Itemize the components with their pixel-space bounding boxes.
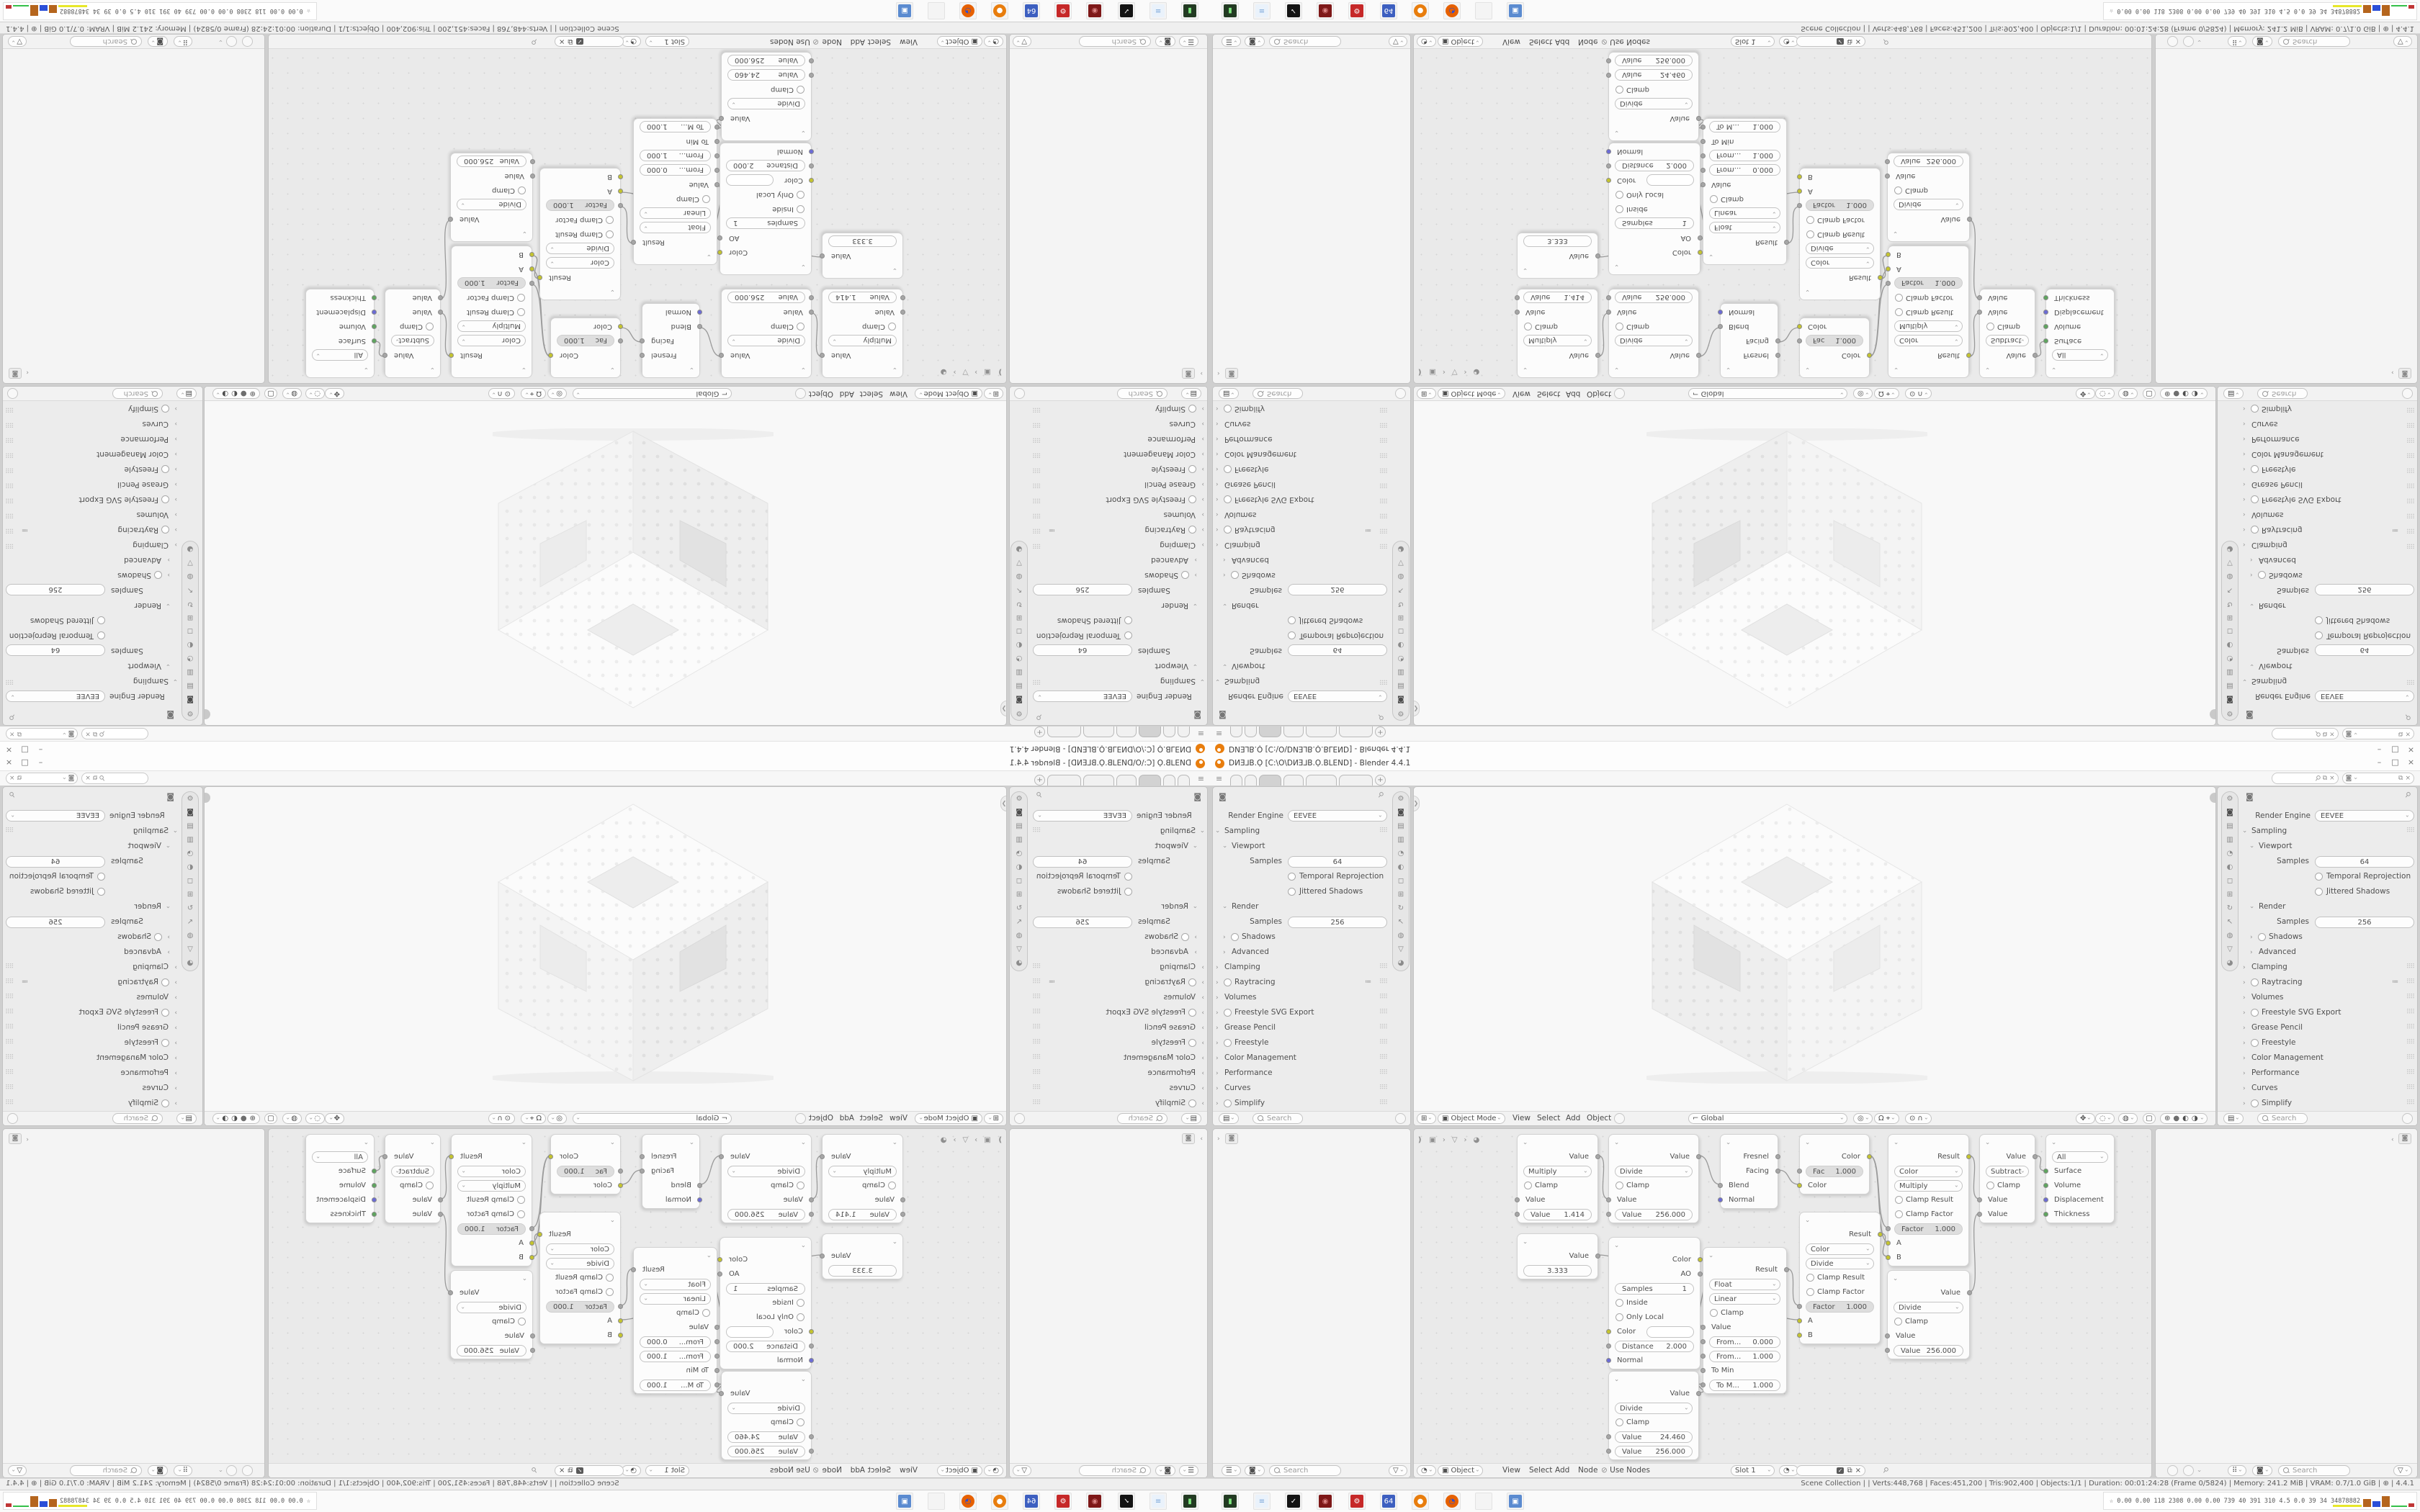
copy-icon[interactable]: ⧉ — [93, 730, 97, 737]
properties-row-viewport[interactable]: ›Viewport — [3, 657, 180, 672]
menu-node[interactable]: Node — [1578, 1466, 1597, 1475]
search-input[interactable]: Search — [1252, 1113, 1303, 1124]
node-checkbox[interactable] — [606, 1274, 614, 1282]
collapse-icon[interactable]: › — [429, 367, 436, 370]
view-layer-icon[interactable]: ▥ — [1397, 837, 1404, 844]
color-swatch-field[interactable] — [726, 174, 774, 186]
node-checkbox[interactable] — [1806, 216, 1814, 224]
overlays-dropdown[interactable]: ◌› — [2095, 388, 2115, 399]
properties-row-performance[interactable]: ›Performance⠿⠿ — [1213, 431, 1390, 446]
collapse-icon[interactable]: › — [1803, 1220, 1811, 1223]
workspace-tab[interactable] — [1230, 775, 1242, 786]
expand-icon[interactable]: › — [26, 369, 29, 377]
subsection-checkbox[interactable] — [1181, 571, 1189, 579]
node-select[interactable]: Divide› — [457, 199, 526, 210]
node-checkbox[interactable] — [1894, 186, 1902, 194]
collapse-icon[interactable]: ❫ — [1417, 368, 1422, 376]
collapse-icon[interactable]: › — [1891, 231, 1899, 234]
properties-row-grease-pencil[interactable]: ›Grease Pencil⠿⠿ — [1213, 476, 1390, 491]
math-subtract-node[interactable]: ›ValueSubtract›ClampValueValue — [1979, 289, 2035, 378]
snapping-dropdown[interactable]: Ω⌖› — [521, 1113, 547, 1124]
wireframe-shading-icon[interactable]: ⊕ — [250, 1115, 256, 1122]
panel-corner-icon[interactable]: ◙ — [2398, 1133, 2411, 1144]
texture-icon[interactable]: ◕ — [2227, 545, 2233, 552]
math-multiply-node[interactable]: ›ValueMultiply›ClampValueValue1.414 — [822, 1134, 903, 1223]
search-input[interactable]: Search — [1117, 388, 1168, 399]
filter-type-dropdown[interactable]: ◙› — [2252, 36, 2272, 47]
minimize-button[interactable]: – — [36, 745, 45, 755]
scene-icon[interactable]: ◔ — [1016, 850, 1023, 858]
properties-row-viewport[interactable]: ›Viewport — [2240, 840, 2417, 855]
properties-row-viewport[interactable]: ›Viewport — [3, 840, 180, 855]
node-checkbox[interactable] — [888, 323, 896, 330]
properties-row-samples[interactable]: Samples256 — [1030, 582, 1207, 597]
subsection-checkbox[interactable] — [1231, 933, 1239, 941]
render-icon[interactable]: ◙ — [1397, 696, 1404, 703]
view-layer-selector[interactable]: ◙ › ⧉ × — [2342, 728, 2414, 739]
node-value-field[interactable]: To M...1.000 — [640, 121, 711, 132]
node-title[interactable]: › — [823, 1135, 902, 1151]
render-icon[interactable]: ◙ — [2226, 696, 2233, 703]
search-input[interactable]: Search — [1269, 36, 1341, 47]
world-icon[interactable]: ◐ — [2227, 641, 2233, 648]
value-field[interactable]: 256 — [2315, 917, 2414, 928]
math-divide-node[interactable]: ›ValueDivide›ClampValue24.460Value256.00… — [721, 1371, 812, 1460]
value-field[interactable]: 256 — [2315, 584, 2414, 595]
section-checkbox[interactable] — [1188, 405, 1196, 413]
math-divide-node[interactable]: ›ValueDivide›ClampValue24.460Value256.00… — [1608, 1371, 1699, 1460]
collapse-icon[interactable]: › — [1707, 254, 1714, 257]
value-field[interactable]: 64 — [1288, 644, 1387, 656]
properties-row-advanced[interactable]: ›Advanced — [1030, 552, 1207, 567]
properties-row-sampling[interactable]: ›Sampling⠿⠿ — [2240, 824, 2417, 840]
texture-icon[interactable]: ◕ — [187, 545, 194, 552]
tool-icon[interactable]: ⚙ — [2227, 796, 2233, 803]
physics-icon[interactable]: ↻ — [187, 905, 193, 912]
math-divide-node[interactable]: ›ValueDivide›ClampValueValue256.000 — [1887, 1270, 1970, 1359]
node-title[interactable]: › — [451, 225, 532, 241]
output-aov-node[interactable]: ›All›SurfaceVolumeDisplacementThickness — [305, 1134, 375, 1223]
sidebar-collapse-handle[interactable] — [204, 709, 210, 719]
properties-row-advanced[interactable]: ›Advanced — [3, 945, 180, 960]
node-title[interactable]: › — [1800, 361, 1869, 377]
red-badge-icon[interactable]: ◉ — [1086, 1493, 1103, 1510]
transform-orientation-dropdown[interactable]: ⌐ Global› — [1688, 388, 1847, 399]
node-checkbox[interactable] — [797, 205, 805, 213]
node-checkbox[interactable] — [1895, 1196, 1903, 1204]
node-value-field[interactable]: From...1.000 — [1709, 150, 1780, 161]
view-layer-selector[interactable]: ◙ › ⧉ × — [6, 773, 78, 784]
option-checkbox[interactable] — [1124, 631, 1132, 639]
collapse-icon[interactable]: › — [1613, 367, 1620, 370]
collapse-icon[interactable]: › — [892, 268, 899, 271]
subsection-checkbox[interactable] — [1181, 933, 1189, 941]
display-mode-dropdown[interactable]: ☰› — [1222, 36, 1241, 47]
blender-icon[interactable]: ● — [991, 2, 1008, 19]
workspace-tab[interactable] — [1178, 775, 1190, 786]
node-title[interactable]: › — [634, 1248, 717, 1264]
workspace-tab[interactable] — [1283, 726, 1304, 737]
section-checkbox[interactable] — [161, 1039, 169, 1047]
value-node[interactable]: ›Value3.333 — [822, 1233, 903, 1279]
subsection-checkbox[interactable] — [154, 933, 162, 941]
filter-type-dropdown[interactable]: ◙› — [1155, 1465, 1175, 1476]
data-button[interactable] — [2183, 1465, 2194, 1476]
view-layer-icon[interactable]: ▥ — [187, 837, 193, 844]
value-field[interactable]: 64 — [2315, 644, 2414, 656]
section-checkbox[interactable] — [1224, 495, 1232, 503]
node-title[interactable]: › — [1609, 1135, 1698, 1151]
properties-row-advanced[interactable]: ›Advanced — [1030, 945, 1207, 960]
toolbar-expand-handle[interactable]: ❯ — [1413, 701, 1420, 716]
node-select[interactable]: Divide› — [727, 1403, 805, 1414]
scene-name-field[interactable] — [2275, 775, 2313, 782]
slot-dropdown[interactable]: Slot 1› — [1731, 36, 1775, 47]
pin-icon[interactable]: ⚲ — [2403, 791, 2412, 800]
node-checkbox[interactable] — [1806, 230, 1814, 238]
collapse-icon[interactable]: › — [1892, 1142, 1899, 1145]
properties-row-render[interactable]: ›Render — [3, 900, 180, 915]
physics-icon[interactable]: ↻ — [1016, 600, 1022, 607]
scene-selector[interactable]: ⚲ ⧉ × — [81, 773, 148, 784]
properties-row-samples[interactable]: Samples256 — [1030, 915, 1207, 930]
filter-dropdown[interactable]: ▽› — [2393, 1465, 2412, 1476]
editor-type-dropdown[interactable]: ⊞› — [984, 1113, 1003, 1124]
properties-row-render[interactable]: ›Render — [1213, 597, 1390, 612]
copy-icon[interactable]: ⧉ — [2323, 730, 2327, 737]
node-value-field[interactable]: Fac1.000 — [557, 1166, 614, 1177]
close-icon[interactable]: × — [1855, 37, 1861, 45]
hw-monitor-icon[interactable]: ▮ — [1222, 2, 1239, 19]
properties-row-grease-pencil[interactable]: ›Grease Pencil⠿⠿ — [2240, 476, 2417, 491]
editor-type-dropdown[interactable]: ▤› — [2223, 388, 2244, 399]
world-icon[interactable]: ◐ — [2227, 864, 2233, 871]
texture-icon[interactable]: ◕ — [1016, 960, 1023, 967]
node-checkbox[interactable] — [1986, 323, 1994, 330]
properties-row-curves[interactable]: ›Curves⠿⠿ — [1213, 1081, 1390, 1097]
output-icon[interactable]: ▤ — [1016, 823, 1022, 830]
proportional-editing-dropdown[interactable]: ⊙∩› — [1905, 388, 1932, 399]
node-checkbox[interactable] — [606, 1288, 614, 1296]
mix-color-multiply-node[interactable]: ›ResultColor›Multiply›Clamp ResultClamp … — [1888, 246, 1969, 378]
material-icon[interactable]: ▽ — [2227, 946, 2233, 953]
node-checkbox[interactable] — [1894, 1318, 1902, 1326]
solid-shading-icon[interactable]: ● — [2173, 390, 2179, 397]
display-mode-dropdown[interactable]: ☰› — [1222, 1465, 1241, 1476]
constraints-icon[interactable]: ↖ — [1016, 919, 1022, 926]
properties-row-freestyle[interactable]: ›Freestyle⠿⠿ — [1030, 1036, 1207, 1051]
layer-weight-node[interactable]: ›FresnelFacingBlendNormal — [1720, 303, 1778, 378]
node-select[interactable]: Color› — [1806, 1243, 1874, 1255]
section-checkbox[interactable] — [2251, 526, 2259, 534]
properties-row-temporal-reprojection[interactable]: Temporal Reprojection — [1213, 870, 1390, 885]
menu-object[interactable]: Object — [1587, 1114, 1611, 1122]
copy-icon[interactable]: ⧉ — [1847, 37, 1852, 45]
node-title[interactable]: › — [823, 1234, 902, 1250]
shader-type-dropdown[interactable]: ▣Object› — [937, 36, 982, 47]
properties-row-sampling[interactable]: ›Sampling⠿⠿ — [1030, 824, 1207, 840]
data-icon[interactable]: ◍ — [187, 932, 194, 940]
workspace-tab[interactable] — [1083, 726, 1114, 737]
constraints-icon[interactable]: ↖ — [2227, 586, 2233, 593]
node-checkbox[interactable] — [518, 186, 526, 194]
node-value-field[interactable]: Value256.000 — [1615, 1446, 1693, 1457]
panel-corner-icon[interactable]: ◙ — [1225, 368, 1238, 379]
editor-type-dropdown[interactable]: ◔› — [1417, 1465, 1436, 1476]
ambient-occlusion-node[interactable]: ›ColorAOSamples1InsideOnly LocalColorDis… — [1608, 1237, 1700, 1369]
shader-type-dropdown[interactable]: ▣Object› — [937, 1465, 982, 1476]
properties-row-performance[interactable]: ›Performance⠿⠿ — [1030, 1066, 1207, 1081]
node-select[interactable]: Divide› — [1615, 1166, 1693, 1177]
properties-row-freestyle[interactable]: ›Freestyle⠿⠿ — [2240, 461, 2417, 476]
physics-icon[interactable]: ↻ — [1016, 905, 1022, 912]
node-title[interactable]: › — [540, 284, 620, 300]
material-dropdown[interactable]: ◔› — [622, 36, 641, 47]
node-value-field[interactable]: Value256.000 — [1615, 55, 1693, 66]
math-divide-node[interactable]: ›ValueDivide›ClampValue24.460Value256.00… — [721, 52, 812, 141]
system-monitor-icon[interactable]: ▣ — [1507, 1493, 1524, 1510]
node-checkbox[interactable] — [702, 1309, 710, 1317]
search-input[interactable]: Search — [112, 1113, 163, 1124]
chevron-right-icon[interactable]: › — [953, 1136, 956, 1144]
constraints-icon[interactable]: ↖ — [187, 919, 193, 926]
texture-icon[interactable]: ◕ — [187, 960, 194, 967]
menu-hamburger-icon[interactable]: ≡ — [1198, 774, 1204, 783]
node-select[interactable]: Color› — [546, 1243, 614, 1255]
node-checkbox[interactable] — [426, 1182, 434, 1189]
editor-type-dropdown[interactable]: ⊞› — [1417, 388, 1436, 399]
properties-row-samples[interactable]: Samples64 — [1213, 642, 1390, 657]
mode-dropdown[interactable]: ▣Object Mode› — [915, 388, 982, 399]
transform-orientation-dropdown[interactable]: ⌐ Global› — [573, 1113, 732, 1124]
properties-row-curves[interactable]: ›Curves⠿⠿ — [3, 1081, 180, 1097]
search-input[interactable]: Search — [2278, 36, 2350, 47]
node-title[interactable]: › — [720, 258, 811, 274]
node-value-field[interactable]: 3.333 — [1523, 235, 1592, 247]
material-name-field[interactable]: ✓ ⧉ × — [1796, 36, 1865, 47]
node-value-field[interactable]: Distance2.000 — [726, 160, 805, 171]
copy-icon[interactable]: ⧉ — [2323, 775, 2327, 782]
workspace-tab[interactable] — [1163, 775, 1175, 786]
properties-row-curves[interactable]: ›Curves⠿⠿ — [1030, 415, 1207, 431]
display-mode-dropdown[interactable]: ⠿› — [2228, 36, 2246, 47]
display-mode-dropdown[interactable]: ⠿› — [174, 1465, 192, 1476]
color-swatch-field[interactable] — [726, 1326, 774, 1338]
add-workspace-button[interactable]: + — [1034, 775, 1045, 786]
math-divide-node[interactable]: ›ValueDivide›ClampValueValue256.000 — [450, 153, 533, 242]
properties-row-samples[interactable]: Samples64 — [2240, 642, 2417, 657]
editor-type-dropdown[interactable]: ◔› — [984, 36, 1003, 47]
properties-row-clamping[interactable]: ›Clamping⠿⠿ — [2240, 536, 2417, 552]
expand-icon[interactable]: › — [1200, 1135, 1203, 1143]
node-value-field[interactable]: Fac1.000 — [1806, 335, 1863, 346]
pin-icon[interactable]: ⚲ — [2313, 773, 2323, 783]
panel-corner-icon[interactable]: ◙ — [2398, 368, 2411, 379]
ambient-occlusion-node[interactable]: ›ColorAOSamples1InsideOnly LocalColorDis… — [1608, 143, 1700, 275]
properties-row-volumes[interactable]: ›Volumes⠿⠿ — [1030, 506, 1207, 521]
pivot-point-dropdown[interactable]: ◎› — [1853, 388, 1873, 399]
refresh-button[interactable] — [2167, 36, 2178, 47]
properties-row-samples[interactable]: Samples64 — [1030, 855, 1207, 870]
scene-icon[interactable]: ◔ — [1398, 850, 1404, 858]
overlays-dropdown[interactable]: ◌› — [305, 1113, 325, 1124]
material-name-field[interactable]: ✓ ⧉ × — [555, 36, 624, 47]
properties-row-shadows[interactable]: ›Shadows — [1213, 930, 1390, 945]
proportional-editing-dropdown[interactable]: ⊙∩› — [488, 388, 515, 399]
editor-type-dropdown[interactable]: ◔› — [1417, 36, 1436, 47]
render-engine-dropdown[interactable]: EEVEE› — [6, 690, 105, 702]
section-checkbox[interactable] — [2251, 978, 2259, 986]
data-button[interactable] — [2183, 36, 2194, 47]
node-value-field[interactable]: From...1.000 — [640, 150, 711, 161]
node-checkbox[interactable] — [606, 216, 614, 224]
node-checkbox[interactable] — [1524, 323, 1532, 330]
close-icon[interactable]: × — [9, 730, 15, 737]
properties-row-samples[interactable]: Samples64 — [3, 642, 180, 657]
section-checkbox[interactable] — [2251, 465, 2259, 473]
texture-icon[interactable]: ◕ — [1398, 545, 1404, 552]
filter-type-dropdown[interactable]: ◙› — [148, 1465, 168, 1476]
properties-row-samples[interactable]: Samples64 — [1030, 642, 1207, 657]
modifiers-icon[interactable]: ⊞ — [1016, 891, 1022, 899]
node-select[interactable]: Divide› — [1894, 199, 1963, 210]
node-value-field[interactable]: Fac1.000 — [1806, 1166, 1863, 1177]
red-gear-icon[interactable]: ⚙ — [1348, 2, 1366, 19]
properties-row-volumes[interactable]: ›Volumes⠿⠿ — [2240, 991, 2417, 1006]
modifiers-icon[interactable]: ⊞ — [1016, 613, 1022, 621]
collapse-icon[interactable]: ❫ — [1417, 1136, 1422, 1144]
properties-row-jittered-shadows[interactable]: Jittered Shadows — [1030, 885, 1207, 900]
properties-row-clamping[interactable]: ›Clamping⠿⠿ — [1213, 960, 1390, 976]
maximize-button[interactable]: □ — [20, 757, 30, 767]
node-select[interactable]: Color› — [457, 335, 526, 346]
node-checkbox[interactable] — [1986, 1182, 1994, 1189]
properties-row-samples[interactable]: Samples64 — [3, 855, 180, 870]
workspace-tab[interactable] — [1116, 726, 1137, 737]
red-gear-icon[interactable]: ⚙ — [1348, 1493, 1366, 1510]
wireframe-shading-icon[interactable]: ⊕ — [250, 390, 256, 397]
view-layer-icon[interactable]: ▥ — [1016, 668, 1022, 675]
properties-row-sampling[interactable]: ›Sampling⠿⠿ — [2240, 672, 2417, 688]
collapse-icon[interactable]: › — [609, 289, 617, 292]
pivot-point-dropdown[interactable]: ◎› — [547, 388, 567, 399]
material-icon[interactable]: ▽ — [1016, 946, 1022, 953]
object-icon[interactable]: ◻ — [1016, 878, 1022, 885]
invert-color-node[interactable]: ›ColorFac1.000Color — [550, 1134, 621, 1194]
collapse-icon[interactable]: › — [1521, 1241, 1528, 1244]
node-value-field[interactable]: Distance2.000 — [726, 1341, 805, 1352]
mode-dropdown[interactable]: ▣Object Mode› — [1438, 388, 1505, 399]
collapse-icon[interactable]: ❫ — [998, 1136, 1003, 1144]
section-checkbox[interactable] — [1224, 1039, 1232, 1047]
render-icon[interactable]: ◙ — [2226, 809, 2233, 816]
copy-icon[interactable]: ⧉ — [568, 37, 573, 45]
menu-add[interactable]: Add — [1566, 1114, 1580, 1122]
workspace-tab[interactable] — [1245, 775, 1257, 786]
node-title[interactable]: › — [551, 361, 620, 377]
node-title[interactable]: › — [385, 361, 440, 377]
node-checkbox[interactable] — [1615, 191, 1623, 199]
map-range-node[interactable]: ›ResultFloat›Linear›ClampValueFrom...0.0… — [1703, 118, 1787, 265]
properties-row-curves[interactable]: ›Curves⠿⠿ — [1213, 415, 1390, 431]
maximize-button[interactable]: □ — [2390, 745, 2400, 755]
properties-row-clamping[interactable]: ›Clamping⠿⠿ — [2240, 960, 2417, 976]
copy-icon[interactable]: ⧉ — [1847, 1467, 1852, 1475]
material-dropdown[interactable]: ◔› — [1779, 1465, 1798, 1476]
properties-row-samples[interactable]: Samples256 — [3, 915, 180, 930]
add-workspace-button[interactable]: + — [1375, 726, 1386, 737]
mode-transfer-button[interactable] — [795, 1113, 806, 1124]
menu-view[interactable]: View — [1502, 1466, 1520, 1475]
node-checkbox[interactable] — [1710, 1309, 1718, 1317]
node-checkbox[interactable] — [797, 323, 805, 330]
math-multiply-node[interactable]: ›ValueMultiply›ClampValueValue1.414 — [822, 289, 903, 378]
copy-icon[interactable]: ⧉ — [17, 730, 22, 737]
view-layer-selector[interactable]: ◙ › ⧉ × — [2342, 773, 2414, 784]
menu-add[interactable]: Add — [851, 37, 865, 46]
display-mode-dropdown[interactable]: ☰› — [1179, 36, 1198, 47]
properties-row-simplify[interactable]: ›Simplify⠿⠿ — [2240, 400, 2417, 415]
panel-corner-icon[interactable]: ◙ — [1182, 1133, 1195, 1144]
slot-dropdown[interactable]: Slot 1› — [1731, 1465, 1775, 1476]
editor-type-dropdown[interactable]: ⊞› — [1417, 1113, 1436, 1124]
workspace-tab[interactable] — [1245, 726, 1257, 737]
notepad-icon[interactable]: ≡ — [1149, 2, 1167, 19]
section-checkbox[interactable] — [2251, 1039, 2259, 1047]
node-select[interactable]: Subtract› — [391, 1166, 434, 1177]
node-title[interactable]: › — [1518, 1234, 1597, 1250]
properties-row-viewport[interactable]: ›Viewport — [1030, 840, 1207, 855]
collapse-icon[interactable]: › — [1984, 1142, 1991, 1145]
properties-row-samples[interactable]: Samples256 — [3, 582, 180, 597]
node-title[interactable]: › — [823, 262, 902, 278]
subsection-checkbox[interactable] — [1231, 571, 1239, 579]
option-checkbox[interactable] — [1124, 888, 1132, 896]
viewport-3d[interactable]: ❯ — [204, 386, 1007, 726]
node-select[interactable]: Divide› — [727, 98, 805, 109]
floppy-64-icon[interactable]: 64 — [1380, 1493, 1397, 1510]
collapse-icon[interactable]: › — [609, 367, 617, 370]
workspace-tab[interactable] — [1306, 726, 1337, 737]
properties-row-render[interactable]: ›Render — [1030, 597, 1207, 612]
firefox-icon[interactable]: ◔ — [1443, 1493, 1461, 1510]
properties-row-jittered-shadows[interactable]: Jittered Shadows — [3, 612, 180, 627]
value-field[interactable]: 64 — [6, 644, 105, 656]
refresh-button[interactable] — [242, 1465, 253, 1476]
xray-toggle[interactable]: ▢ — [264, 1113, 277, 1124]
menu-node[interactable]: Node — [823, 1466, 842, 1475]
section-checkbox[interactable] — [161, 405, 169, 413]
mix-color-divide-node[interactable]: ›ResultColor›Divide›Clamp ResultClamp Fa… — [1799, 168, 1881, 300]
math-subtract-node[interactable]: ›ValueSubtract›ClampValueValue — [385, 289, 441, 378]
panel-corner-icon[interactable]: ◙ — [9, 1133, 22, 1144]
world-icon[interactable]: ◐ — [187, 641, 194, 648]
close-icon[interactable]: × — [85, 775, 91, 782]
pin-icon[interactable]: ⚲ — [530, 37, 539, 46]
view-layer-icon[interactable]: ▥ — [2226, 837, 2233, 844]
collapse-icon[interactable]: › — [689, 367, 696, 370]
chevron-right-icon[interactable]: › — [974, 1136, 977, 1144]
red-badge-icon[interactable]: ◉ — [1317, 2, 1334, 19]
wireframe-shading-icon[interactable]: ⊕ — [2164, 1115, 2170, 1122]
properties-row-render[interactable]: ›Render — [3, 597, 180, 612]
properties-row-raytracing[interactable]: ›Raytracing≔⠿⠿ — [3, 976, 180, 991]
stop-icon[interactable]: ▣ — [984, 1136, 990, 1144]
collapse-icon[interactable]: › — [800, 367, 807, 370]
math-divide-node[interactable]: ›ValueDivide›ClampValueValue256.000 — [721, 1134, 812, 1223]
use-nodes-checkbox[interactable]: ⊘ Use Nodes — [770, 1466, 819, 1475]
collapse-icon[interactable]: › — [1613, 1379, 1620, 1382]
